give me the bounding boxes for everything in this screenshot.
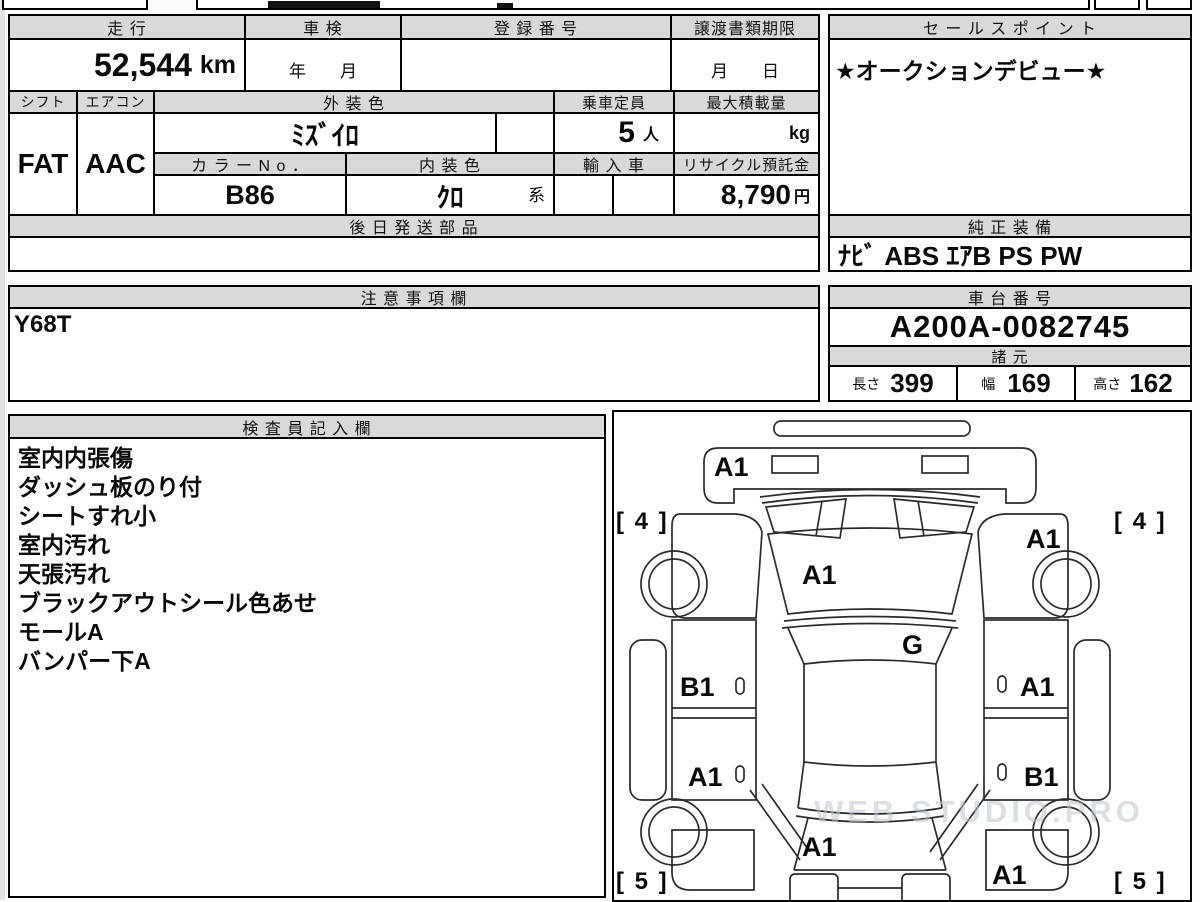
spec-length-cell: 長さ 399 — [828, 365, 958, 402]
payload-header: 最大積載量 — [673, 90, 820, 114]
color-no-header: カ ラ ー N o ． — [153, 152, 347, 176]
aircon-header: エアコン — [76, 90, 155, 114]
mileage-unit: km — [200, 51, 236, 80]
capacity-unit: 人 — [643, 121, 659, 145]
damage-diagram-box: WEB STUDIO.PRO A1 [ 4 ] [ 4 ] A1 A1 G B1… — [612, 410, 1192, 902]
spec-height-value: 162 — [1129, 368, 1172, 399]
deadline-value-cell: 月 日 — [670, 38, 820, 92]
exterior-color-value: ﾐｽﾞｲﾛ — [153, 112, 497, 154]
capacity-header: 乗車定員 — [553, 90, 675, 114]
recycle-header: リサイクル預託金 — [673, 152, 820, 176]
tire-grade-front-right: [ 4 ] — [1114, 510, 1167, 534]
page-left-margin — [0, 0, 5, 900]
registration-header: 登 録 番 号 — [400, 14, 672, 40]
shift-value: FAT — [8, 112, 78, 216]
spec-width-cell: 幅 169 — [956, 365, 1076, 402]
registration-value-cell — [400, 38, 672, 92]
tire-grade-front-left: [ 4 ] — [616, 510, 669, 534]
spec-height-label: 高さ — [1093, 374, 1121, 394]
damage-label-rear-gate: A1 — [802, 834, 837, 861]
mileage-value-cell: 52,544 km — [8, 38, 246, 92]
mileage-header: 走 行 — [8, 14, 246, 40]
shaken-header: 車 検 — [244, 14, 402, 40]
interior-color-suffix: 系 — [528, 181, 545, 206]
tire-grade-rear-right: [ 5 ] — [1114, 870, 1167, 894]
cutoff-cell — [1094, 0, 1140, 10]
import-cell-2 — [612, 174, 675, 216]
shaken-value-cell: 年 月 — [244, 38, 402, 92]
notes-header: 注 意 事 項 欄 — [8, 285, 820, 309]
parts-header: 後 日 発 送 部 品 — [8, 214, 820, 238]
mileage-value: 52,544 — [94, 47, 192, 84]
inspector-notes-cell: 室内内張傷 ダッシュ板のり付 シートすれ小 室内汚れ 天張汚れ ブラックアウトシ… — [8, 437, 606, 898]
recycle-value-cell: 8,790 円 — [673, 174, 820, 216]
equipment-header: 純 正 装 備 — [828, 214, 1192, 238]
shift-header: シフト — [8, 90, 78, 114]
import-header: 輸 入 車 — [553, 152, 675, 176]
cutoff-cell — [1146, 0, 1192, 10]
inspector-note: 室内内張傷 — [18, 444, 596, 473]
chassis-value: A200A-0082745 — [828, 307, 1192, 347]
inspector-note: 天張汚れ — [18, 560, 596, 589]
deadline-header: 譲渡書類期限 — [670, 14, 820, 40]
tire-grade-rear-left: [ 5 ] — [616, 870, 669, 894]
payload-value-cell: kg — [673, 112, 820, 154]
spec-width-label: 幅 — [981, 374, 995, 394]
recycle-value: 8,790 — [721, 179, 791, 211]
spec-length-label: 長さ — [852, 374, 880, 394]
interior-color-value: ｸﾛ — [437, 176, 464, 215]
inspector-note: シートすれ小 — [18, 502, 596, 531]
inspector-note: ダッシュ板のり付 — [18, 473, 596, 502]
notes-value: Y68T — [8, 307, 820, 402]
inspector-note: モールA — [18, 618, 596, 647]
damage-label-door-rear-left: A1 — [688, 764, 723, 791]
spec-width-value: 169 — [1007, 368, 1050, 399]
damage-label-door-front-left: B1 — [680, 674, 715, 701]
damage-label-door-front-right: A1 — [1020, 674, 1055, 701]
import-cell-1 — [553, 174, 614, 216]
inspector-note: ブラックアウトシール色あせ — [18, 589, 596, 618]
deadline-value: 月 日 — [711, 57, 779, 82]
damage-label-rear-bumper-right: A1 — [992, 862, 1027, 889]
damage-label-roof: G — [902, 632, 923, 659]
capacity-value: 5 — [618, 116, 635, 150]
interior-color-value-cell: ｸﾛ 系 — [345, 174, 555, 216]
inspector-header: 検 査 員 記 入 欄 — [8, 414, 606, 439]
parts-value-cell — [8, 236, 820, 272]
damage-label-hood: A1 — [802, 562, 837, 589]
inspector-note: バンパー下A — [18, 647, 596, 676]
exterior-color-sub-cell — [495, 112, 555, 154]
inspector-note: 室内汚れ — [18, 531, 596, 560]
damage-label-front-bumper: A1 — [714, 454, 749, 481]
watermark-text: WEB STUDIO.PRO — [814, 794, 1144, 830]
spec-height-cell: 高さ 162 — [1074, 365, 1192, 402]
recycle-unit: 円 — [794, 183, 810, 207]
exterior-color-header: 外 装 色 — [153, 90, 555, 114]
payload-unit: kg — [789, 123, 810, 144]
color-no-value: B86 — [153, 174, 347, 216]
equipment-value: ﾅﾋﾞ ABS ｴｱB PS PW — [828, 236, 1192, 272]
interior-color-header: 内 装 色 — [345, 152, 555, 176]
damage-label-door-rear-right: B1 — [1024, 764, 1059, 791]
sales-point-header: セ ー ル ス ポ イ ン ト — [828, 14, 1192, 40]
aircon-value: AAC — [76, 112, 155, 216]
cutoff-text-fragment — [497, 3, 513, 8]
specs-header: 諸 元 — [828, 345, 1192, 367]
cutoff-text-fragment — [268, 1, 380, 8]
shaken-value: 年 月 — [289, 57, 357, 82]
damage-label-front-fender-right: A1 — [1026, 526, 1061, 553]
sales-point-value: ★オークションデビュー★ — [828, 38, 1192, 216]
chassis-header: 車 台 番 号 — [828, 285, 1192, 309]
capacity-value-cell: 5 人 — [553, 112, 675, 154]
cutoff-cell — [2, 0, 148, 10]
spec-length-value: 399 — [890, 368, 933, 399]
